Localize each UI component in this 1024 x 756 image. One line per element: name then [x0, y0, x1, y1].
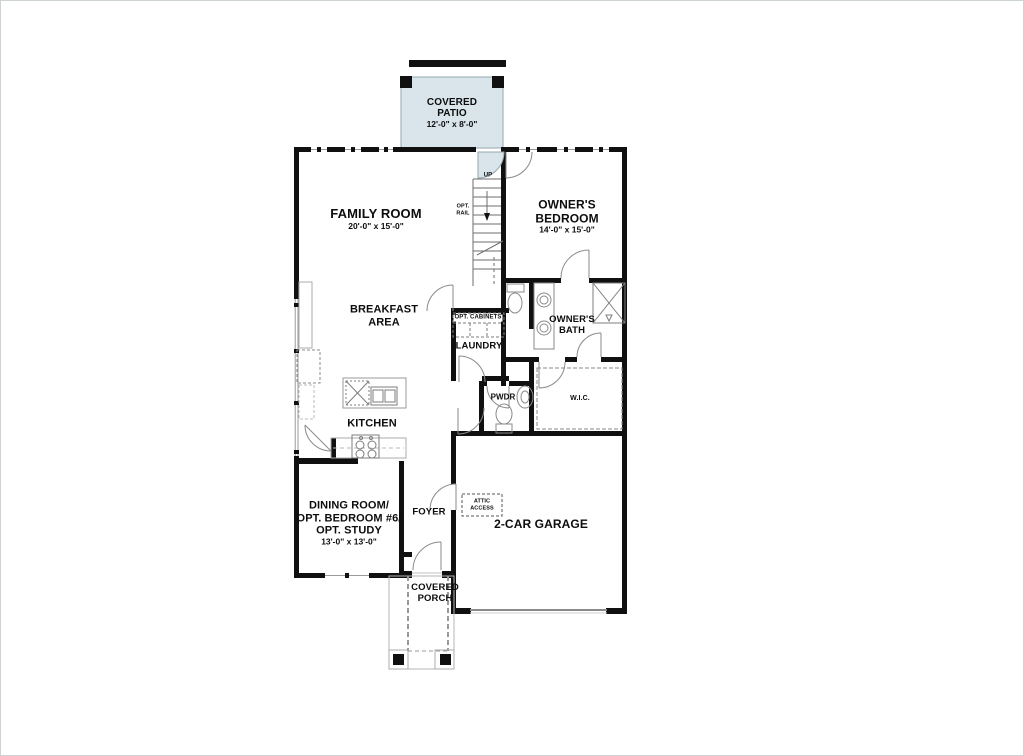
- opt-cabinets-label: OPT. CABINETS: [454, 315, 503, 322]
- pwdr-label: PWDR: [491, 392, 516, 401]
- owners-bedroom-label: OWNER'S BEDROOM 14'-0" x 15'-0": [535, 198, 598, 235]
- stair-break-line: [477, 241, 503, 255]
- floor-plan-drawing: [1, 1, 1024, 756]
- hall-door-a: [459, 356, 485, 382]
- refrigerator: [297, 350, 320, 383]
- covered-porch-label: COVERED PORCH: [411, 583, 459, 605]
- floor-plan-page: COVERED PATIO 12'-0" x 8'-0" FAMILY ROOM…: [0, 0, 1024, 756]
- owners-bath-label: OWNER'S BATH: [549, 315, 595, 337]
- garage-label: 2-CAR GARAGE: [494, 518, 588, 532]
- garage-door: [470, 610, 607, 613]
- covered-patio-label: COVERED PATIO 12'-0" x 8'-0": [427, 97, 478, 129]
- porch-column-right: [440, 654, 451, 665]
- bedroom-entry-door: [506, 152, 532, 178]
- laundry-label: LAUNDRY: [456, 342, 503, 353]
- attic-access-label: ATTIC ACCESS: [470, 498, 494, 511]
- porch-column-left: [393, 654, 404, 665]
- foyer-label: FOYER: [412, 508, 445, 519]
- bath-toilet-tank: [507, 284, 524, 292]
- kitchen-label: KITCHEN: [347, 418, 397, 431]
- up-label: UP: [484, 173, 493, 180]
- stair-direction-arrow: [484, 213, 490, 221]
- family-room-label: FAMILY ROOM 20'-0" x 15'-0": [330, 207, 421, 232]
- patio-column-right: [492, 76, 504, 88]
- bedroom-hall-door: [561, 250, 589, 278]
- patio-roof-edge: [409, 60, 506, 67]
- bath-toilet-bowl: [508, 293, 522, 313]
- opt-rail-label: OPT. RAIL: [456, 203, 469, 216]
- bath-sink-1: [537, 293, 551, 307]
- stairs: [473, 179, 503, 286]
- opt-counter: [299, 385, 314, 419]
- breakfast-area-label: BREAKFAST AREA: [350, 303, 418, 328]
- left-wall-window-strip: [294, 299, 299, 456]
- dining-window: [321, 573, 373, 578]
- wic-label: W.I.C.: [570, 395, 590, 403]
- front-door: [413, 542, 441, 570]
- hall-laundry-door: [427, 285, 453, 311]
- patio-column-left: [400, 76, 412, 88]
- dining-room-label: DINING ROOM/ OPT. BEDROOM #6/ OPT. STUDY…: [297, 499, 402, 546]
- wic-door: [539, 362, 565, 388]
- shower: [593, 283, 625, 323]
- left-counter: [299, 282, 312, 348]
